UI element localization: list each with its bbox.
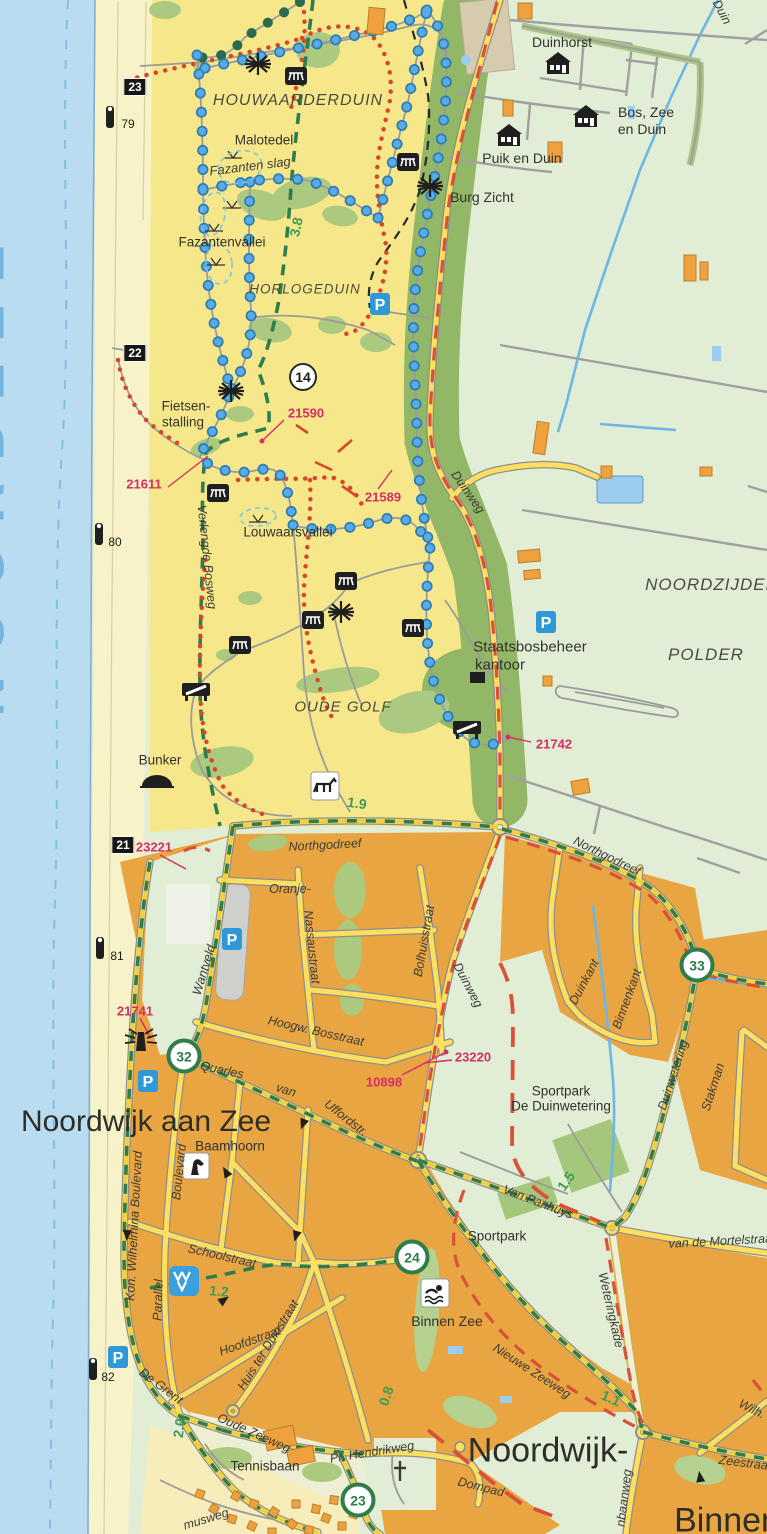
- horse-icon: [183, 1153, 209, 1179]
- svg-text:P: P: [227, 932, 238, 949]
- svg-text:P: P: [541, 615, 552, 632]
- terrain-layer: [0, 0, 767, 1534]
- dog-area-icon: [311, 772, 339, 800]
- svg-text:P: P: [375, 297, 386, 314]
- vvv-tourist-info-icon: [169, 1266, 199, 1296]
- topographic-map: P P P P P NOORDZEE HOUWAARDERDUIN HORLOG…: [0, 0, 767, 1534]
- svg-text:P: P: [143, 1074, 154, 1091]
- svg-text:P: P: [113, 1350, 124, 1367]
- map-graphics: P P P P P: [0, 0, 767, 1534]
- swimmer-icon: [421, 1279, 449, 1307]
